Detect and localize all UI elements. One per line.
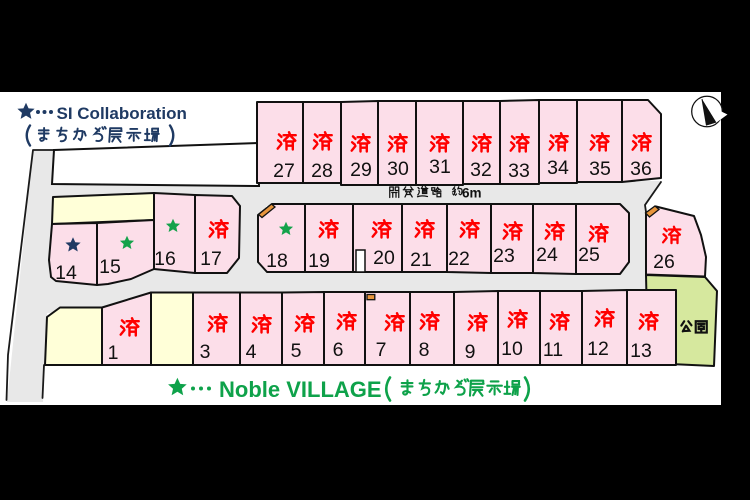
svg-text:5: 5 bbox=[291, 340, 302, 362]
svg-text:7: 7 bbox=[376, 339, 387, 361]
svg-text:31: 31 bbox=[429, 156, 451, 178]
svg-text:25: 25 bbox=[578, 244, 600, 266]
svg-text:26: 26 bbox=[653, 251, 675, 273]
svg-text:16: 16 bbox=[154, 248, 176, 270]
svg-text:13: 13 bbox=[630, 340, 652, 362]
svg-text:17: 17 bbox=[200, 248, 222, 270]
svg-text:10: 10 bbox=[501, 338, 523, 360]
svg-text:12: 12 bbox=[587, 338, 609, 360]
svg-text:11: 11 bbox=[543, 339, 563, 361]
svg-text:18: 18 bbox=[266, 250, 288, 272]
svg-text:20: 20 bbox=[373, 247, 395, 269]
svg-text:23: 23 bbox=[493, 245, 515, 267]
svg-text:33: 33 bbox=[508, 160, 530, 182]
svg-text:22: 22 bbox=[448, 248, 470, 270]
svg-text:28: 28 bbox=[311, 160, 333, 182]
svg-text:4: 4 bbox=[246, 341, 257, 363]
svg-text:21: 21 bbox=[410, 249, 432, 271]
svg-text:SI Collaboration: SI Collaboration bbox=[57, 104, 187, 123]
svg-text:6: 6 bbox=[333, 339, 344, 361]
svg-text:Noble VILLAGE: Noble VILLAGE bbox=[219, 377, 382, 402]
svg-text:27: 27 bbox=[273, 160, 295, 182]
svg-text:36: 36 bbox=[630, 158, 652, 180]
svg-text:35: 35 bbox=[589, 158, 611, 180]
svg-text:14: 14 bbox=[55, 262, 77, 284]
svg-text:9: 9 bbox=[465, 341, 476, 363]
svg-text:29: 29 bbox=[350, 159, 372, 181]
svg-text:3: 3 bbox=[200, 341, 211, 363]
svg-text:6m: 6m bbox=[462, 186, 482, 201]
svg-text:19: 19 bbox=[308, 250, 330, 272]
svg-text:15: 15 bbox=[99, 256, 121, 278]
svg-text:24: 24 bbox=[536, 244, 558, 266]
svg-text:8: 8 bbox=[419, 339, 430, 361]
svg-text:30: 30 bbox=[387, 158, 409, 180]
svg-text:1: 1 bbox=[108, 342, 119, 364]
svg-text:32: 32 bbox=[470, 159, 492, 181]
svg-text:34: 34 bbox=[547, 157, 569, 179]
